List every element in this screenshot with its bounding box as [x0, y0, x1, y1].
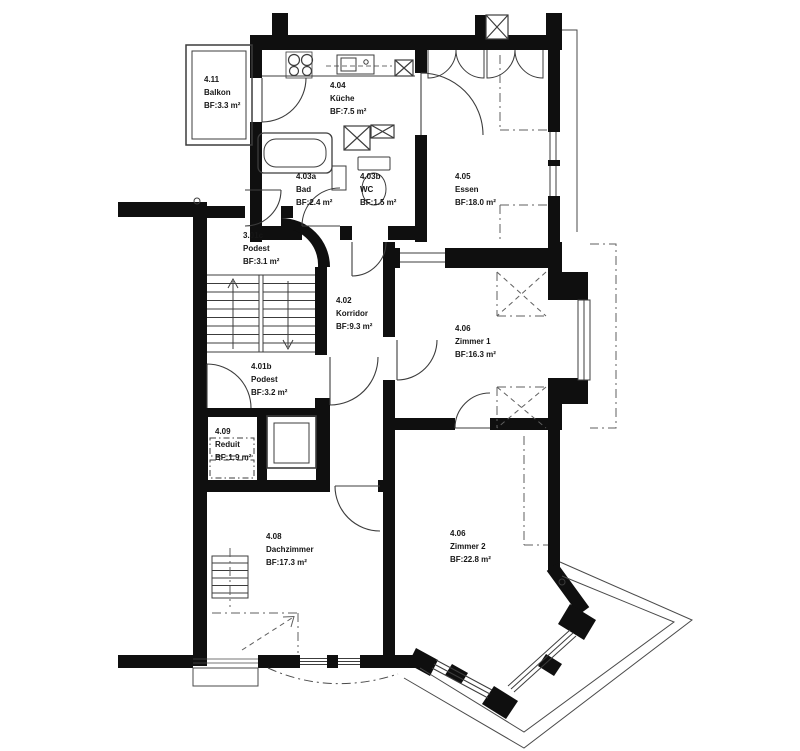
room-area: BF:22.8 m² [450, 553, 491, 566]
room-label-kueche: 4.04 Küche BF:7.5 m² [330, 79, 366, 118]
room-name: WC [360, 183, 396, 196]
room-number: 4.06 [450, 527, 491, 540]
chimney-left [272, 13, 288, 35]
door-podest-b [207, 364, 251, 408]
roof-dash-essen [500, 55, 548, 240]
room-label-reduit: 4.09 Reduit BF:1.9 m² [215, 425, 251, 464]
bay-post-s [482, 686, 518, 719]
room-label-essen: 4.05 Essen BF:18.0 m² [455, 170, 496, 209]
room-label-wc: 4.03b WC BF:1.5 m² [360, 170, 396, 209]
room-number: 4.04 [330, 79, 366, 92]
room-name: Podest [251, 373, 287, 386]
room-area: BF:3.1 m² [243, 255, 279, 268]
bay-post-w [408, 648, 438, 676]
room-name: Küche [330, 92, 366, 105]
room-area: BF:16.3 m² [455, 348, 496, 361]
room-area: BF:2.4 m² [296, 196, 332, 209]
door-zimmer2 [455, 393, 490, 428]
bay-post-ne [558, 604, 596, 640]
stove-icon [286, 52, 313, 78]
room-name: Korridor [336, 307, 372, 320]
roof-dash-dachzimmer [212, 613, 298, 653]
room-name: Dachzimmer [266, 543, 314, 556]
roof-slope-lines [212, 55, 548, 653]
room-area: BF:3.2 m² [251, 386, 287, 399]
room-name: Zimmer 1 [455, 335, 496, 348]
casement-windows [428, 50, 543, 78]
room-number: 4.02 [336, 294, 372, 307]
door-dachzimmer [335, 486, 380, 531]
room-area: BF:18.0 m² [455, 196, 496, 209]
room-name: Essen [455, 183, 496, 196]
room-number: 4.03a [296, 170, 332, 183]
door-kueche-essen [421, 73, 483, 135]
room-number: 4.09 [215, 425, 251, 438]
door-podest-korridor [330, 357, 378, 405]
curved-wall [281, 218, 330, 267]
room-number: 4.06 [455, 322, 496, 335]
room-label-podest-401b: 4.01b Podest BF:3.2 m² [251, 360, 287, 399]
room-label-dachzimmer: 4.08 Dachzimmer BF:17.3 m² [266, 530, 314, 569]
room-label-korridor: 4.02 Korridor BF:9.3 m² [336, 294, 372, 333]
room-label-zimmer2: 4.06 Zimmer 2 BF:22.8 m² [450, 527, 491, 566]
roof-dash-zimmer2 [524, 436, 548, 545]
washbasin-icon [332, 166, 346, 190]
floor-plan-canvas: 4.11 Balkon BF:3.3 m² 4.04 Küche BF:7.5 … [0, 0, 800, 751]
room-number: 4.03b [360, 170, 396, 183]
room-number: 4.11 [204, 73, 240, 86]
skylight-shaft [267, 416, 316, 468]
room-label-podest-301c: 3.01c Podest BF:3.1 m² [243, 229, 279, 268]
room-name: Podest [243, 242, 279, 255]
room-area: BF:7.5 m² [330, 105, 366, 118]
room-area: BF:17.3 m² [266, 556, 314, 569]
room-area: BF:9.3 m² [336, 320, 372, 333]
room-label-zimmer1: 4.06 Zimmer 1 BF:16.3 m² [455, 322, 496, 361]
room-name: Balkon [204, 86, 240, 99]
room-area: BF:1.9 m² [215, 451, 251, 464]
room-label-balkon: 4.11 Balkon BF:3.3 m² [204, 73, 240, 112]
attic-ladder [212, 548, 248, 607]
bathtub-icon [258, 133, 332, 173]
chimney-right [546, 13, 562, 35]
roof-dash-zimmer1 [497, 272, 548, 428]
eave-line-east [562, 30, 577, 232]
room-name: Bad [296, 183, 332, 196]
door-balcony [262, 78, 306, 122]
floor-plan-drawing [0, 0, 800, 751]
bay-mullion-a [538, 654, 562, 676]
door-zimmer1 [397, 340, 437, 380]
interior-window [400, 253, 445, 262]
room-number: 4.01b [251, 360, 287, 373]
staircase [207, 275, 315, 352]
room-number: 3.01c [243, 229, 279, 242]
room-number: 4.08 [266, 530, 314, 543]
room-name: Zimmer 2 [450, 540, 491, 553]
room-name: Reduit [215, 438, 251, 451]
dormer-roof-dash [590, 244, 616, 428]
room-area: BF:3.3 m² [204, 99, 240, 112]
room-number: 4.05 [455, 170, 496, 183]
room-label-bad: 4.03a Bad BF:2.4 m² [296, 170, 332, 209]
sink-icon [337, 55, 374, 74]
room-area: BF:1.5 m² [360, 196, 396, 209]
door-wc [352, 242, 386, 276]
